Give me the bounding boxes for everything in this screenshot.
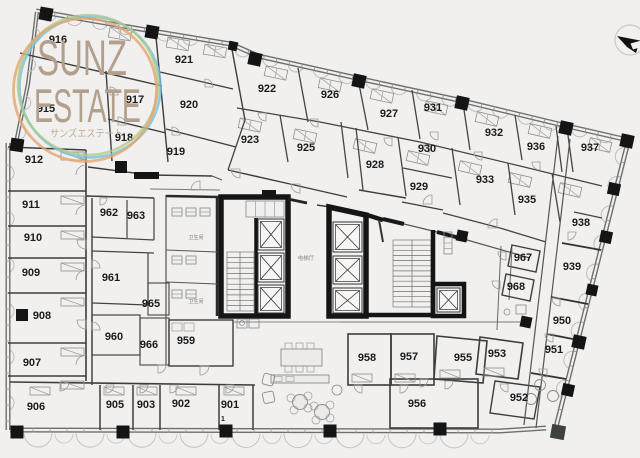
svg-text:1: 1: [221, 416, 225, 423]
svg-text:911: 911: [22, 199, 40, 211]
svg-text:905: 905: [106, 399, 124, 411]
svg-text:959: 959: [177, 335, 195, 347]
svg-text:ESTATE: ESTATE: [34, 79, 141, 132]
svg-text:909: 909: [22, 267, 40, 279]
svg-text:卫生间: 卫生间: [188, 298, 203, 305]
svg-text:923: 923: [241, 134, 259, 146]
svg-text:SUNZ: SUNZ: [37, 30, 127, 86]
svg-text:903: 903: [137, 399, 155, 411]
svg-text:960: 960: [105, 331, 123, 343]
svg-text:955: 955: [454, 352, 472, 364]
svg-text:958: 958: [358, 352, 376, 364]
svg-text:951: 951: [545, 344, 563, 356]
svg-text:935: 935: [518, 194, 536, 206]
svg-text:902: 902: [172, 398, 190, 410]
svg-text:サンズエステート: サンズエステート: [50, 127, 123, 140]
svg-text:910: 910: [24, 232, 42, 244]
svg-text:928: 928: [366, 159, 384, 171]
svg-text:919: 919: [167, 146, 185, 158]
svg-text:953: 953: [488, 348, 506, 360]
svg-text:912: 912: [25, 154, 43, 166]
svg-text:929: 929: [410, 181, 428, 193]
svg-text:901: 901: [221, 399, 239, 411]
svg-text:961: 961: [102, 272, 120, 284]
svg-text:933: 933: [476, 174, 494, 186]
svg-text:921: 921: [175, 54, 193, 66]
svg-text:967: 967: [514, 252, 532, 264]
svg-text:927: 927: [380, 108, 398, 120]
svg-text:963: 963: [127, 210, 145, 222]
svg-text:906: 906: [27, 401, 45, 413]
svg-text:937: 937: [581, 142, 599, 154]
svg-text:965: 965: [142, 298, 160, 310]
svg-text:922: 922: [258, 83, 276, 95]
svg-text:电梯厅: 电梯厅: [298, 254, 315, 262]
svg-text:925: 925: [297, 142, 315, 154]
svg-text:907: 907: [23, 357, 41, 369]
svg-text:931: 931: [424, 102, 442, 114]
svg-text:957: 957: [400, 351, 418, 363]
svg-text:920: 920: [180, 99, 198, 111]
svg-text:932: 932: [485, 127, 503, 139]
svg-text:卫生间: 卫生间: [188, 234, 203, 241]
svg-text:939: 939: [563, 261, 581, 273]
svg-text:952: 952: [510, 392, 528, 404]
svg-text:930: 930: [418, 143, 436, 155]
svg-text:962: 962: [100, 207, 118, 219]
svg-text:966: 966: [140, 339, 158, 351]
svg-text:926: 926: [321, 89, 339, 101]
svg-text:968: 968: [507, 281, 525, 293]
svg-text:950: 950: [553, 315, 571, 327]
svg-text:936: 936: [527, 141, 545, 153]
svg-text:938: 938: [572, 217, 590, 229]
svg-text:956: 956: [408, 398, 426, 410]
svg-text:908: 908: [33, 310, 51, 322]
